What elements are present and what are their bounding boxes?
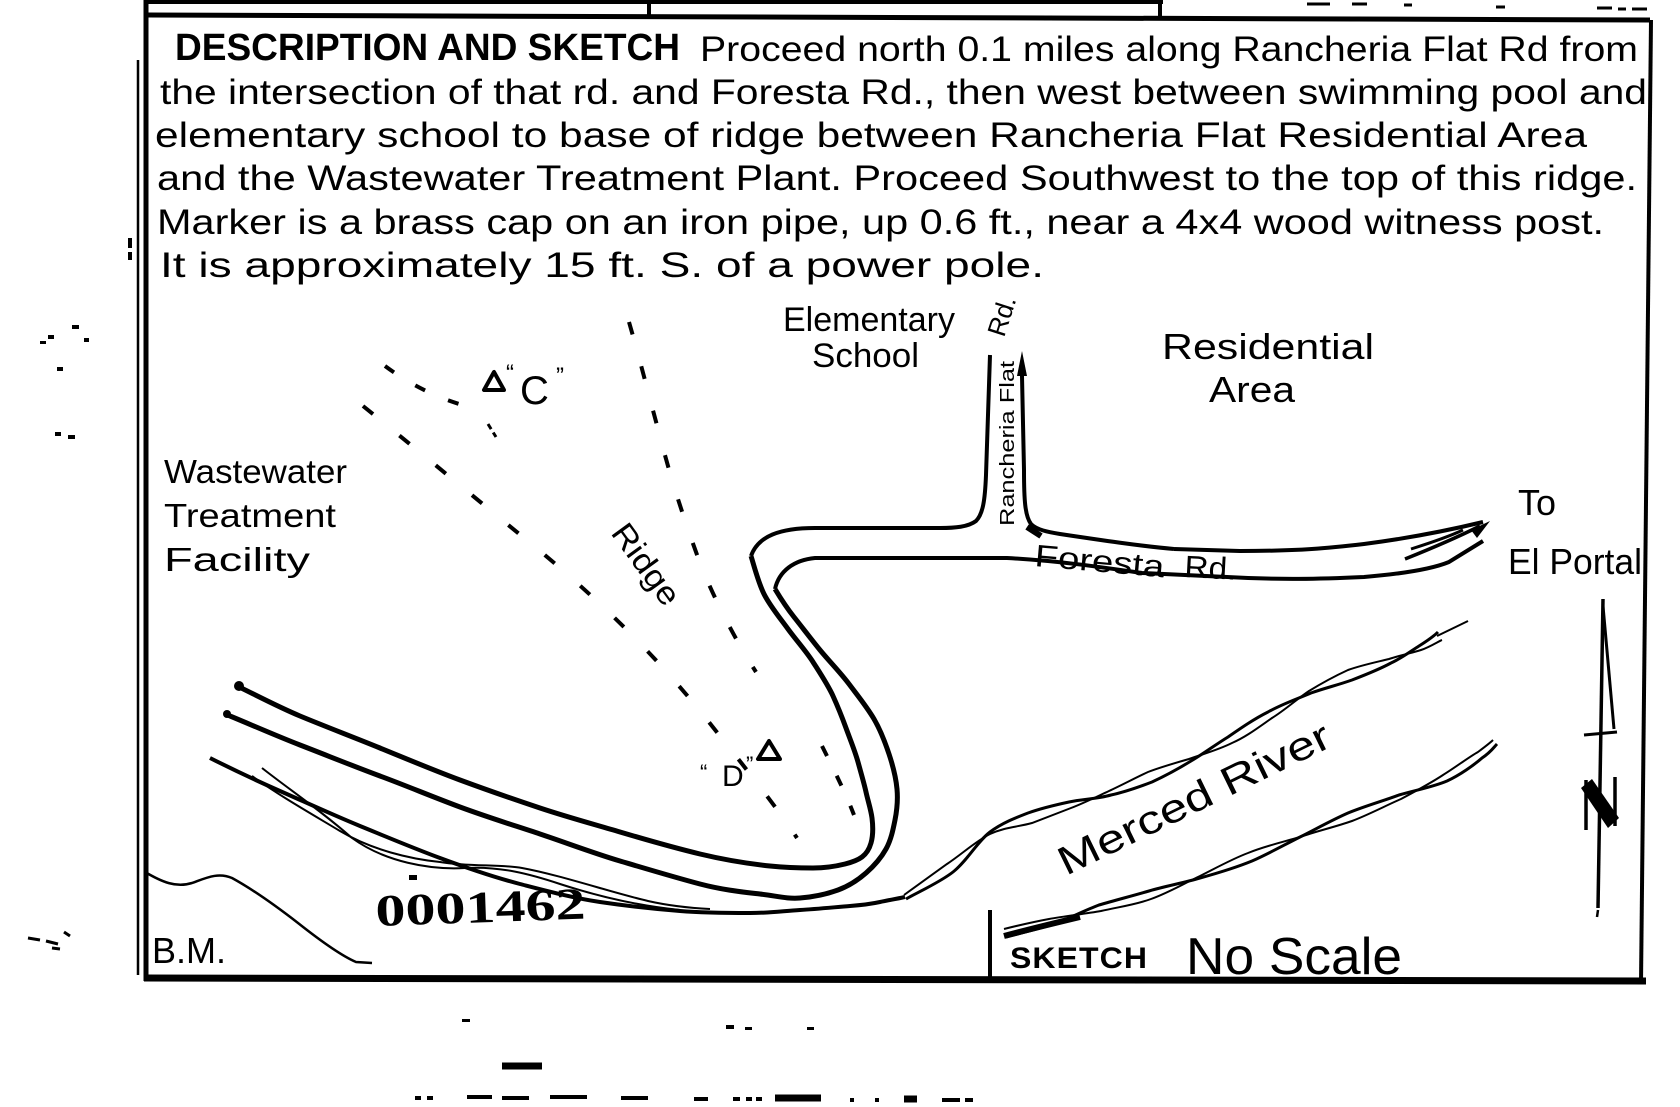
svg-text:C: C xyxy=(520,369,549,413)
svg-text:elementary school to base of r: elementary school to base of ridge betwe… xyxy=(155,116,1588,155)
svg-text:El Portal: El Portal xyxy=(1508,541,1642,582)
svg-text:No Scale: No Scale xyxy=(1186,928,1402,986)
svg-text:DESCRIPTION AND SKETCH: DESCRIPTION AND SKETCH xyxy=(175,27,680,69)
svg-text:To: To xyxy=(1518,482,1556,523)
svg-text:0001462: 0001462 xyxy=(375,879,587,936)
svg-text:Marker is a brass cap on an ir: Marker is a brass cap on an iron pipe, u… xyxy=(157,203,1604,242)
svg-text:”: ” xyxy=(746,752,753,777)
svg-text:Proceed north 0.1 miles along: Proceed north 0.1 miles along Rancheria … xyxy=(700,30,1638,69)
svg-text:the intersection of that rd. a: the intersection of that rd. and Foresta… xyxy=(160,73,1647,112)
svg-text:”: ” xyxy=(556,363,564,390)
svg-text:Residential: Residential xyxy=(1162,326,1374,367)
svg-text:Facility: Facility xyxy=(164,541,311,578)
svg-text:Treatment: Treatment xyxy=(164,497,336,534)
svg-text:and the Wastewater Treatment P: and the Wastewater Treatment Plant. Proc… xyxy=(157,159,1637,198)
svg-text:School: School xyxy=(812,337,919,375)
svg-text:Wastewater: Wastewater xyxy=(164,453,347,490)
svg-text:SKETCH: SKETCH xyxy=(1010,942,1148,975)
svg-text:Rd.: Rd. xyxy=(1184,549,1238,587)
svg-text:Area: Area xyxy=(1209,369,1296,410)
svg-text:It is approximately 15 ft. S.: It is approximately 15 ft. S. of a power… xyxy=(160,246,1044,285)
svg-text:Elementary: Elementary xyxy=(783,301,955,339)
svg-text:Rancheria Flat: Rancheria Flat xyxy=(997,360,1019,526)
svg-text:“: “ xyxy=(700,760,707,785)
svg-text:B.M.: B.M. xyxy=(152,930,226,971)
svg-text:“: “ xyxy=(506,360,514,387)
